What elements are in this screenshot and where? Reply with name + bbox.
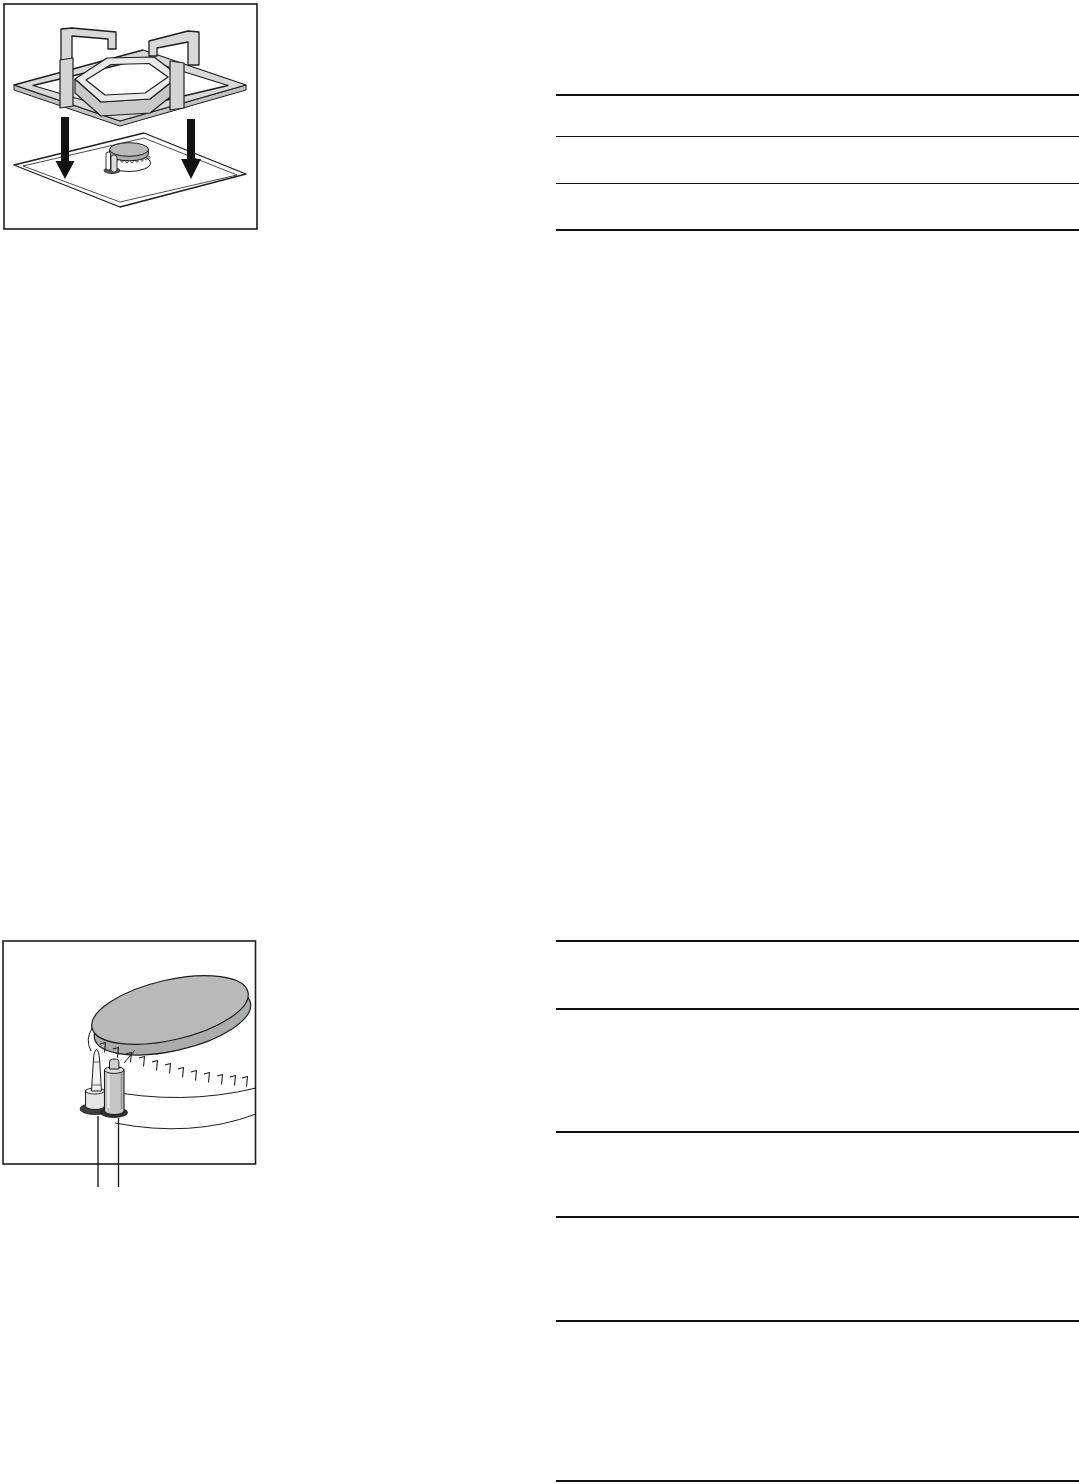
table-rule [556, 1131, 1079, 1133]
pan-support-placement-figure [3, 3, 258, 230]
burner-detail-figure [2, 940, 257, 1190]
manual-page [0, 0, 1079, 1484]
gas-burner [104, 143, 151, 174]
table-rule [556, 1320, 1079, 1322]
table-rule [556, 1480, 1079, 1482]
burner-cap [110, 143, 149, 157]
thermocouple [106, 152, 111, 170]
table-rule [556, 1008, 1079, 1010]
support-prong-front-left [60, 58, 73, 108]
table-rule [556, 940, 1079, 942]
table-bottom-right [556, 0, 1079, 1484]
support-prong-front-right [170, 61, 184, 110]
table-rule [556, 1216, 1079, 1218]
ignition-electrode [111, 155, 117, 172]
